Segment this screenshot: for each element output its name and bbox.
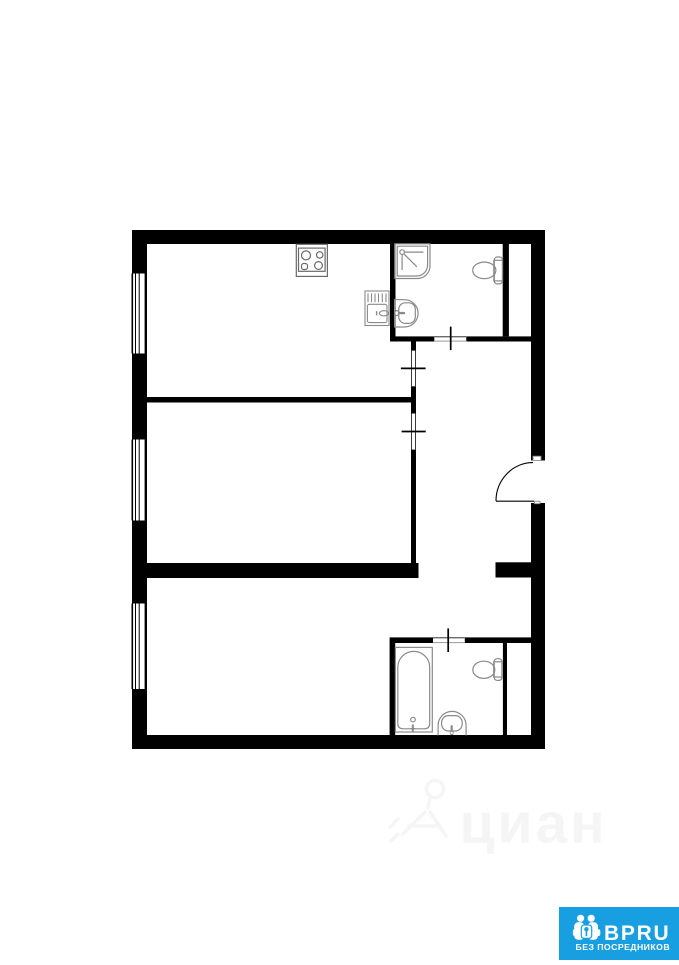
svg-text:циан: циан [460,792,608,856]
svg-text:БЕЗ ПОСРЕДНИКОВ: БЕЗ ПОСРЕДНИКОВ [576,942,671,952]
